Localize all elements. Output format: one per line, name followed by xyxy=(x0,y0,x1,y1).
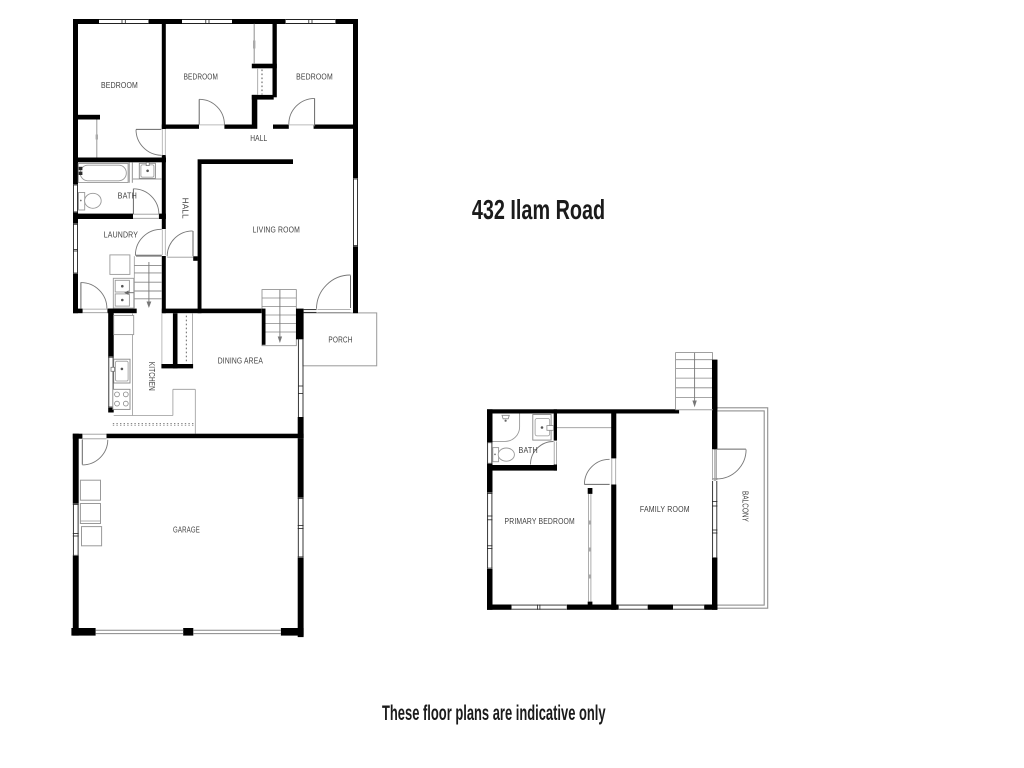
svg-text:These floor plans are indicati: These floor plans are indicative only xyxy=(382,702,606,725)
svg-text:PORCH: PORCH xyxy=(328,335,352,345)
svg-text:BALCONY: BALCONY xyxy=(741,491,751,522)
svg-text:GARAGE: GARAGE xyxy=(173,525,200,535)
svg-text:LIVING ROOM: LIVING ROOM xyxy=(253,225,300,235)
svg-text:HALL: HALL xyxy=(181,198,191,219)
svg-text:HALL: HALL xyxy=(250,133,267,143)
svg-text:BEDROOM: BEDROOM xyxy=(296,72,333,82)
svg-text:432 Ilam Road: 432 Ilam Road xyxy=(472,194,605,225)
svg-text:LAUNDRY: LAUNDRY xyxy=(104,230,138,240)
svg-text:BEDROOM: BEDROOM xyxy=(184,72,218,82)
svg-text:BATH: BATH xyxy=(519,445,538,455)
svg-text:DINING AREA: DINING AREA xyxy=(218,355,263,365)
svg-text:PRIMARY BEDROOM: PRIMARY BEDROOM xyxy=(505,516,575,526)
svg-text:FAMILY ROOM: FAMILY ROOM xyxy=(640,504,690,514)
svg-text:BEDROOM: BEDROOM xyxy=(101,80,138,90)
svg-text:KITCHEN: KITCHEN xyxy=(147,362,157,391)
svg-text:BATH: BATH xyxy=(118,190,137,200)
